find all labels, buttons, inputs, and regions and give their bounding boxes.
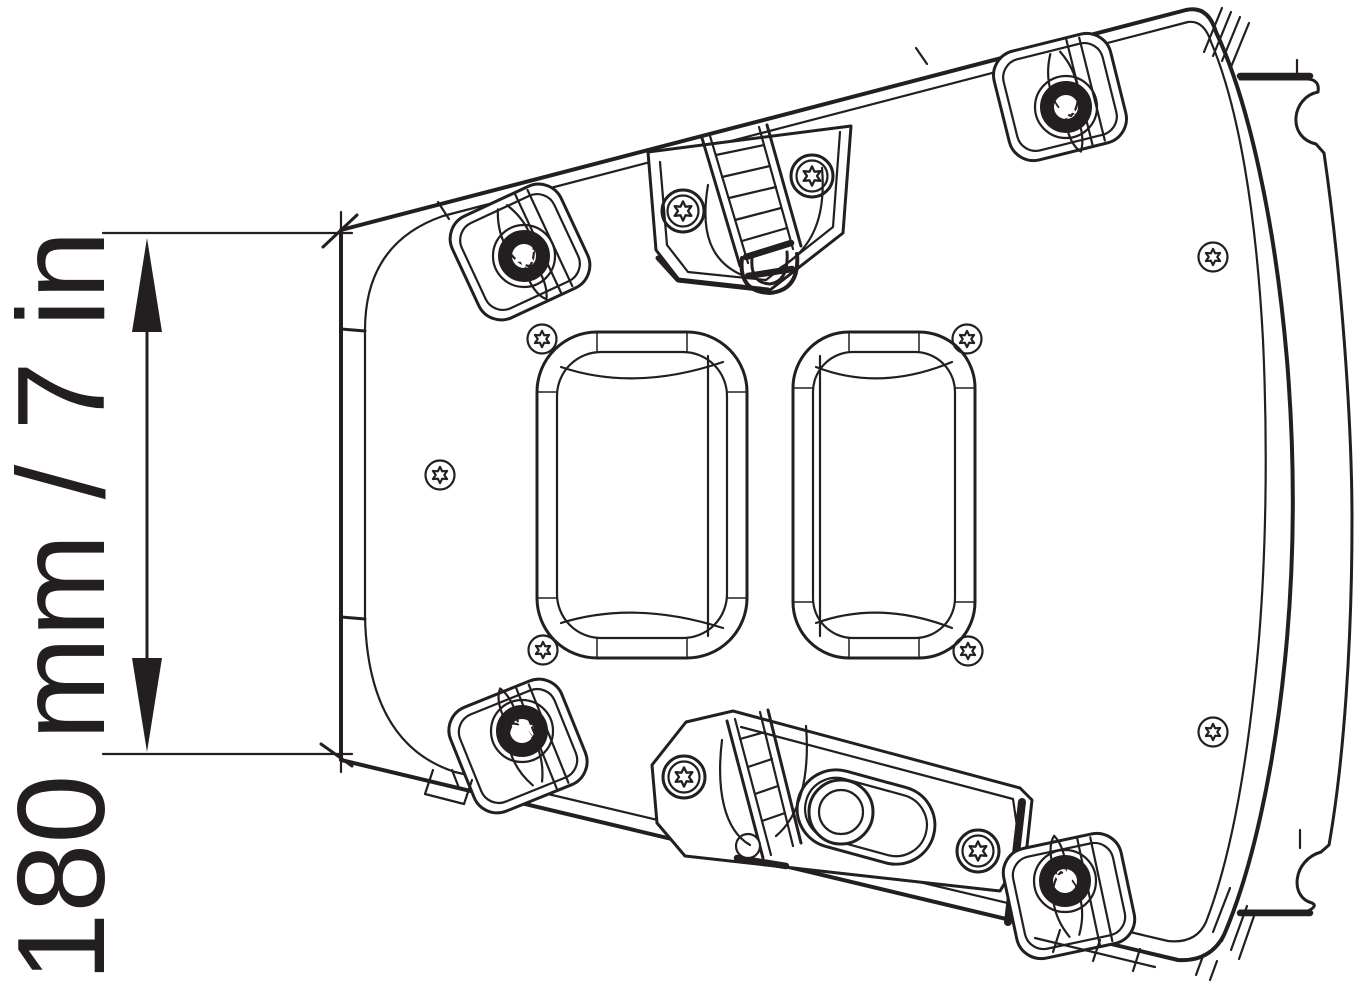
dimension-label: 180 mm / 7 in — [0, 230, 131, 981]
torx-screw-heavy-icon — [493, 225, 555, 287]
technical-drawing-canvas: 180 mm / 7 in — [0, 0, 1358, 993]
torx-screw-heavy-icon — [491, 700, 553, 762]
torx-screw-heavy-icon — [1035, 76, 1097, 138]
technical-drawing-page: 180 mm / 7 in — [0, 0, 1358, 993]
handle-cutout-left — [537, 332, 747, 658]
arrowhead-down-icon — [132, 658, 162, 752]
dimension-annotation: 180 mm / 7 in — [0, 215, 357, 982]
arrowhead-up-icon — [132, 238, 162, 332]
handle-cutout-right — [793, 332, 975, 658]
torx-screw-heavy-icon — [1034, 850, 1096, 912]
